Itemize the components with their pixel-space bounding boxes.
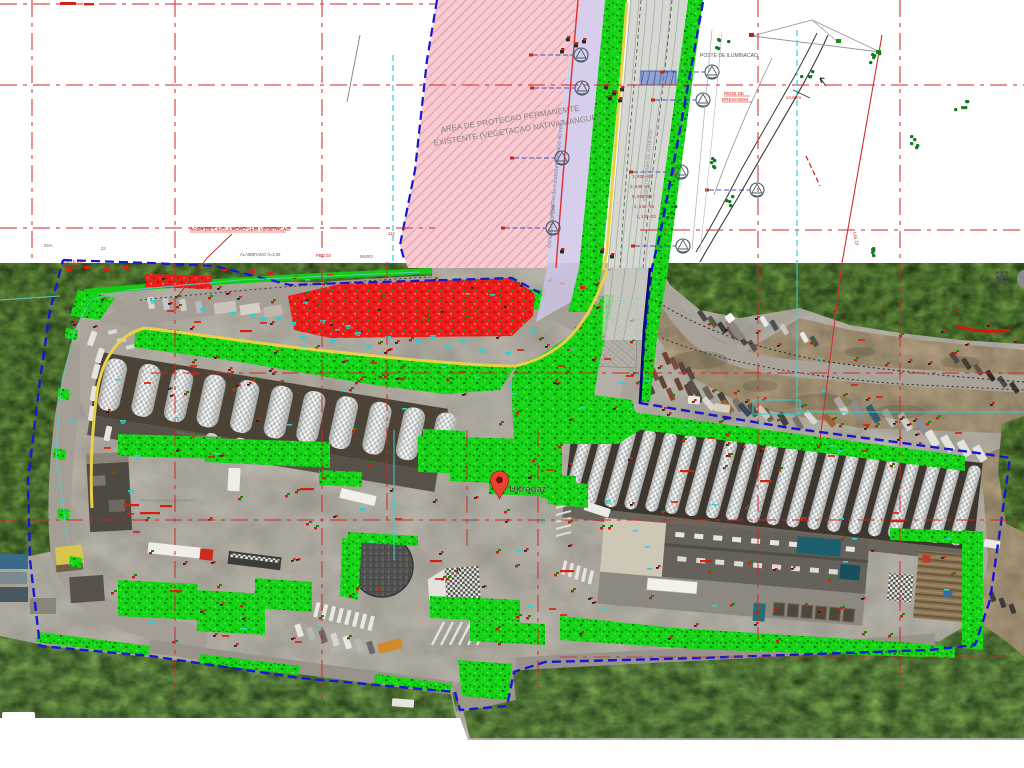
svg-text:TERRENO: TERRENO <box>62 264 83 269</box>
svg-text:1,13E-02: 1,13E-02 <box>636 216 657 220</box>
svg-text:PATIO ESTACIONAMENTO: PATIO ESTACIONAMENTO <box>140 498 196 503</box>
svg-text:POSTE DE ILUMINACAO: POSTE DE ILUMINACAO <box>700 53 758 59</box>
svg-text:14,63m: 14,63m <box>786 95 801 100</box>
svg-text:ALAMBRADO h=2,00: ALAMBRADO h=2,00 <box>240 252 281 257</box>
svg-text:MURO: MURO <box>360 254 374 259</box>
svg-text:DRENAGEM: DRENAGEM <box>722 97 748 102</box>
svg-text:REDE DE: REDE DE <box>724 91 744 96</box>
svg-text:ZOA: ZOA <box>44 243 53 248</box>
svg-text:112: 112 <box>388 231 395 236</box>
svg-text:2,64E-03: 2,64E-03 <box>634 206 655 210</box>
svg-text:PE 2,50: PE 2,50 <box>316 253 332 258</box>
svg-text:22: 22 <box>101 246 106 251</box>
svg-text:Ultragaz: Ultragaz <box>509 484 547 495</box>
